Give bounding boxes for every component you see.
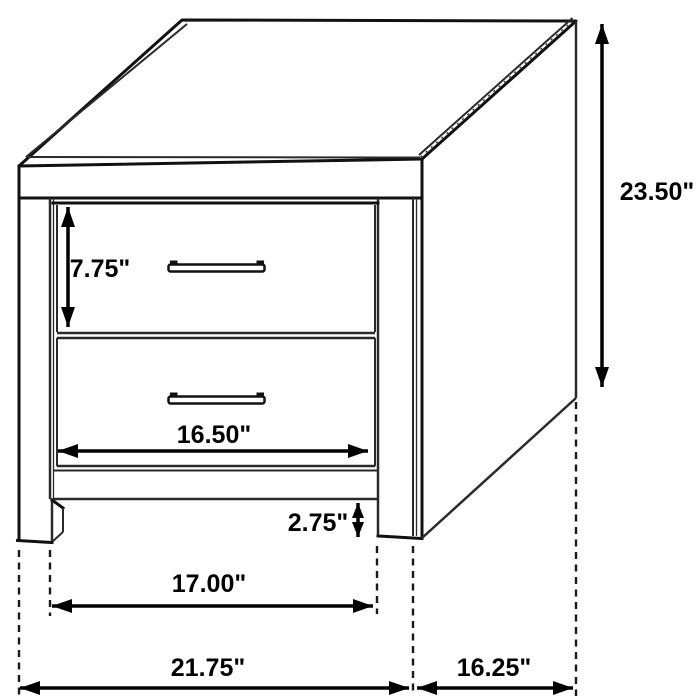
left-leg-inner-top-wedge	[52, 500, 63, 508]
dim-label-drawer-width: 16.50"	[177, 421, 251, 449]
dim-overall-depth: 16.25"	[417, 654, 573, 688]
dim-leg-inner-width: 17.00"	[52, 570, 373, 606]
dim-label-overall-width: 21.75"	[171, 654, 245, 682]
side-panel	[422, 21, 576, 538]
tabletop-edge-hatching	[421, 20, 575, 158]
base-and-legs	[18, 471, 423, 543]
dim-label-overall-height: 23.50"	[620, 178, 694, 206]
drawer-2-handle	[169, 393, 265, 404]
extension-lines	[19, 402, 576, 696]
dim-drawer-height: 7.75"	[68, 207, 130, 327]
side-panel-bottom-edge	[422, 398, 576, 538]
left-leg-foot-bottom	[18, 541, 53, 543]
dim-label-base-clearance: 2.75"	[288, 509, 349, 537]
right-leg-foot-bottom	[378, 536, 422, 539]
dim-base-clearance: 2.75"	[288, 503, 358, 537]
tabletop-right-edge-line	[419, 18, 573, 155]
handle-bar	[169, 397, 265, 404]
dim-drawer-width: 16.50"	[58, 421, 368, 451]
dim-overall-height: 23.50"	[602, 24, 694, 387]
dim-label-overall-depth: 16.25"	[457, 654, 531, 682]
front-frame	[19, 159, 422, 540]
dim-label-leg-inner-width: 17.00"	[172, 570, 246, 598]
tabletop-front-edge-line	[26, 157, 420, 158]
tabletop-left-edge-line	[26, 24, 187, 157]
drawer-1-handle	[169, 261, 265, 272]
handle-bar	[169, 265, 265, 272]
left-leg-back-foot-edge	[52, 532, 63, 542]
nightstand-diagram-svg: 23.50" 7.75" 16.50" 2.75" 17.00" 21.75" …	[0, 0, 700, 700]
tabletop	[19, 18, 576, 166]
dim-label-drawer-height: 7.75"	[70, 255, 131, 283]
dim-overall-width: 21.75"	[20, 654, 409, 688]
dimension-diagram: 23.50" 7.75" 16.50" 2.75" 17.00" 21.75" …	[0, 0, 700, 700]
